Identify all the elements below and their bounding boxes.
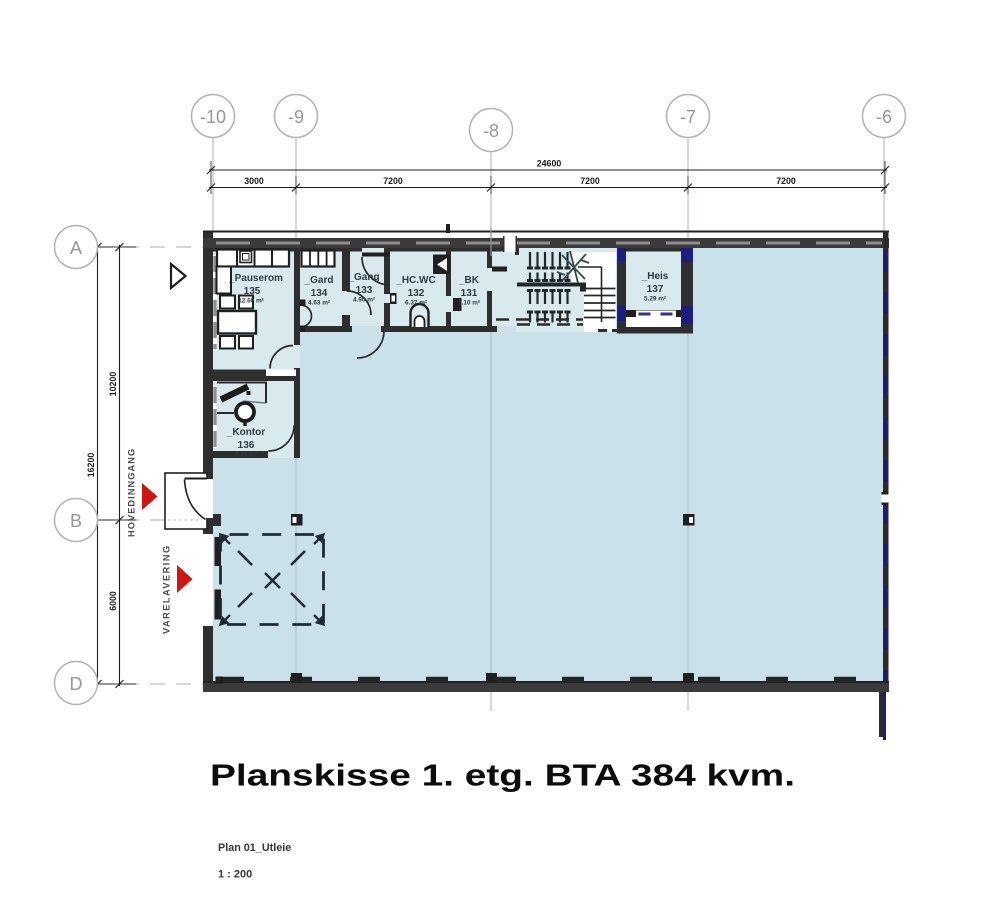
svg-text:133: 133 (356, 285, 373, 296)
svg-text:Plan 01_Utleie: Plan 01_Utleie (218, 842, 291, 854)
svg-text:7200: 7200 (580, 176, 600, 186)
svg-text:_Heis: _Heis (641, 271, 669, 282)
svg-text:1 : 200: 1 : 200 (218, 869, 252, 881)
svg-text:B: B (70, 511, 82, 531)
svg-text:_Gard: _Gard (304, 275, 334, 286)
svg-text:-6: -6 (876, 107, 892, 127)
svg-text:5.29 m²: 5.29 m² (644, 296, 666, 303)
svg-text:10200: 10200 (108, 372, 118, 397)
svg-text:16200: 16200 (86, 453, 96, 478)
svg-text:12.60 m²: 12.60 m² (238, 298, 264, 305)
svg-text:4.63 m²: 4.63 m² (308, 300, 330, 307)
svg-text:6.37 m²: 6.37 m² (405, 300, 427, 307)
svg-text:VARELAVERING: VARELAVERING (162, 544, 172, 634)
svg-text:7200: 7200 (776, 176, 796, 186)
svg-text:A: A (70, 238, 82, 258)
svg-text:-9: -9 (288, 107, 304, 127)
svg-text:_HC.WC: _HC.WC (395, 275, 435, 286)
svg-text:_BK: _BK (458, 275, 480, 286)
svg-text:-10: -10 (200, 107, 226, 127)
svg-text:137: 137 (647, 284, 664, 295)
svg-text:136: 136 (238, 440, 255, 451)
svg-text:_Pauserom: _Pauserom (228, 273, 283, 284)
svg-text:Planskisse 1. etg. BTA 384 kvm: Planskisse 1. etg. BTA 384 kvm. (210, 759, 795, 793)
svg-text:-7: -7 (680, 107, 696, 127)
svg-text:4.90 m²: 4.90 m² (353, 297, 375, 304)
svg-text:132: 132 (408, 288, 425, 299)
svg-text:_Kontor: _Kontor (226, 427, 265, 438)
svg-text:6000: 6000 (108, 591, 118, 611)
svg-text:1.10 m²: 1.10 m² (458, 300, 480, 307)
svg-text:131: 131 (461, 288, 478, 299)
svg-text:-8: -8 (483, 121, 499, 141)
svg-text:7200: 7200 (383, 176, 403, 186)
svg-text:135: 135 (244, 286, 261, 297)
svg-text:24600: 24600 (537, 159, 562, 169)
svg-text:134: 134 (311, 288, 328, 299)
svg-text:7.96 m²: 7.96 m² (235, 451, 257, 458)
svg-text:_Gang: _Gang (347, 272, 379, 283)
svg-text:3000: 3000 (244, 176, 264, 186)
svg-text:D: D (70, 674, 83, 694)
svg-text:HOVEDINNGANG: HOVEDINNGANG (127, 448, 137, 537)
